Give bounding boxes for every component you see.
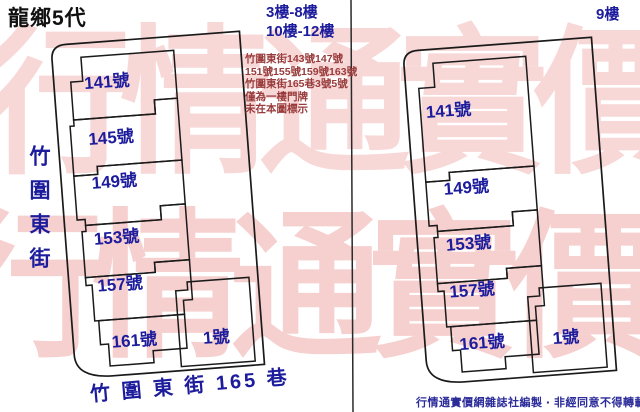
address-note: 竹圍東街143號147號 151號155號159號163號 竹圍東街165巷3號… bbox=[245, 53, 357, 116]
address-note-line3: 竹圍東街165巷3號5號 bbox=[245, 78, 357, 91]
left-unit-149 bbox=[73, 160, 186, 226]
right-unit-149-label: 149號 bbox=[443, 176, 490, 198]
right-unit-153-label: 153號 bbox=[445, 232, 492, 254]
left-map-floor-range-line2: 10樓-12樓 bbox=[266, 22, 334, 41]
right-unit-161-label: 161號 bbox=[459, 332, 506, 354]
right-parcel-outline bbox=[403, 37, 617, 384]
address-note-line4: 僅為一樓門牌 bbox=[245, 91, 357, 104]
right-unit-149 bbox=[425, 166, 538, 232]
street-label-left: 竹圍東街 bbox=[23, 145, 53, 281]
left-map-floor-range: 3樓-8樓 10樓-12樓 bbox=[266, 3, 334, 41]
right-unit-141-label: 141號 bbox=[425, 100, 472, 122]
left-unit-141-label: 141號 bbox=[84, 71, 131, 93]
left-parcel-outline bbox=[51, 31, 265, 378]
address-note-line1: 竹圍東街143號147號 bbox=[245, 53, 357, 66]
left-unit-149-label: 149號 bbox=[91, 170, 138, 192]
address-note-line2: 151號155號159號163號 bbox=[245, 66, 357, 79]
left-unit-157-label: 157號 bbox=[97, 273, 144, 295]
publisher-credit: 行情通實價網雜誌社編製 ‧ 非經同意不得轉載 bbox=[416, 394, 640, 410]
left-unit-145-label: 145號 bbox=[88, 127, 135, 149]
address-note-line5: 未在本圖標示 bbox=[245, 103, 357, 116]
floorplan-page: 行情通實價網 行情通實價網 141號 145號 149號 153號 157號 1… bbox=[0, 0, 640, 412]
left-unit-161-label: 161號 bbox=[111, 329, 158, 351]
right-map-floor-label: 9樓 bbox=[596, 3, 619, 24]
left-unit-153-label: 153號 bbox=[93, 226, 140, 248]
right-unit-157-label: 157號 bbox=[449, 279, 496, 301]
right-unit-1-label: 1號 bbox=[552, 327, 580, 348]
left-map-floor-range-line1: 3樓-8樓 bbox=[266, 3, 334, 22]
left-map: 141號 145號 149號 153號 157號 161號 1號 bbox=[51, 31, 265, 378]
left-unit-1-label: 1號 bbox=[202, 327, 230, 348]
left-unit-1 bbox=[175, 277, 255, 366]
page-title: 龍鄉5代 bbox=[8, 2, 87, 32]
right-map: 141號 149號 153號 157號 161號 1號 bbox=[403, 37, 617, 384]
